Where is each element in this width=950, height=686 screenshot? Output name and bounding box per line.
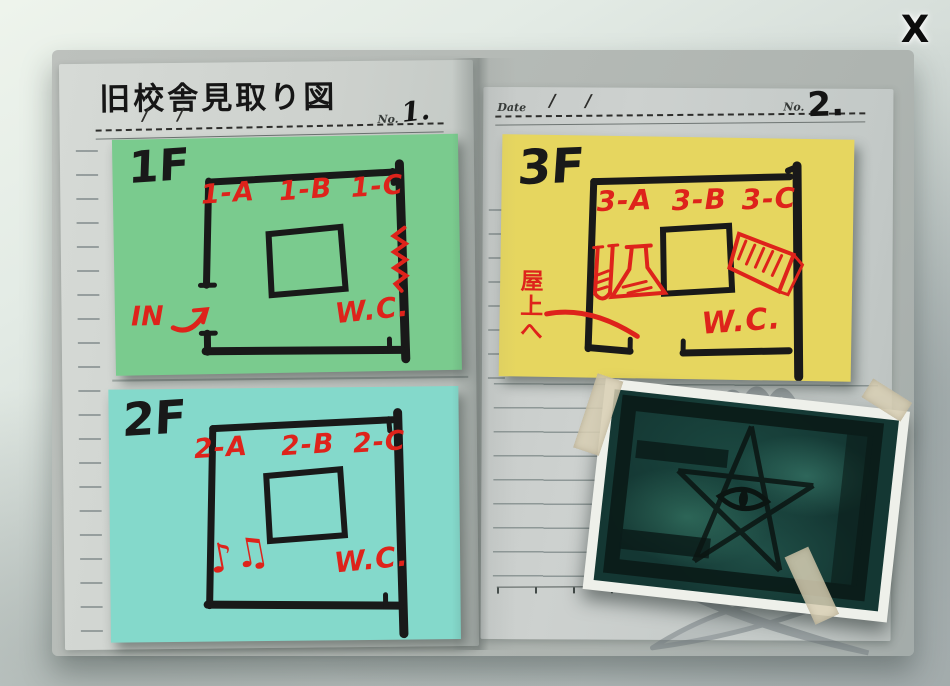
entrance-arrow-icon — [173, 312, 205, 330]
roof-label: 屋上へ — [509, 268, 540, 343]
sticky-note-3f[interactable]: 3F 3-A 3-B 3-C 屋上へ W.C. — [499, 134, 855, 381]
close-button[interactable]: X — [893, 6, 937, 54]
page-number: 1. — [400, 95, 432, 129]
room-label: 3-B — [671, 182, 728, 217]
page-number: 2. — [807, 84, 845, 125]
date-slash: / — [177, 105, 183, 125]
pentagram-eye-drawing — [594, 389, 899, 611]
ruled-line-stubs — [76, 150, 103, 644]
date-slash: / — [142, 105, 148, 125]
ruled-line — [112, 376, 468, 381]
floor-label-2f: 2F — [122, 393, 188, 443]
no-label: No. — [377, 113, 398, 126]
date-label: Date — [497, 101, 526, 114]
room-label: 3-A — [596, 183, 653, 218]
date-slash: / — [585, 91, 591, 111]
sticky-note-1f[interactable]: 1F 1-A 1-B 1-C IN W.C. — [112, 134, 462, 376]
page-title: 旧校舎見取り図 — [99, 71, 337, 118]
flask-icon — [612, 245, 666, 298]
right-page: Date / / No. 2. — [481, 87, 894, 641]
room-label: 2-C — [352, 425, 407, 459]
floor-label-3f: 3F — [516, 142, 586, 192]
date-slash: / — [549, 91, 555, 111]
sticky-note-2f[interactable]: 2F 2-A 2-B 2-C ♪♫ W.C. — [108, 386, 461, 643]
toilet-label: W.C. — [700, 301, 782, 342]
photo-image — [594, 389, 899, 611]
room-label: 1-C — [350, 169, 405, 204]
notebook-screen: 旧校舎見取り図 / / No. 1. — [0, 0, 950, 686]
no-label: No. — [783, 101, 804, 114]
room-label: 2-A — [193, 431, 249, 465]
room-label: 1-B — [278, 173, 334, 208]
pentagram-photo[interactable] — [583, 378, 910, 622]
room-label: 1-A — [200, 176, 256, 211]
room-label: 3-C — [741, 181, 797, 216]
room-label: 2-B — [280, 428, 335, 462]
book-sketch-icon — [729, 234, 803, 295]
entrance-label: IN — [131, 301, 164, 333]
left-page: 旧校舎見取り図 / / No. 1. — [59, 60, 479, 650]
floor-label-1f: 1F — [128, 143, 190, 191]
